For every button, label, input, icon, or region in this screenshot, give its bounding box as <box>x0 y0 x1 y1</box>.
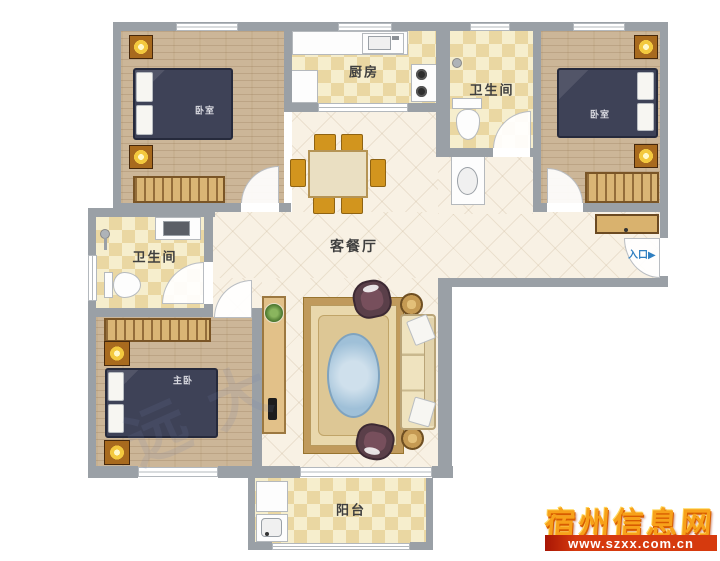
balcony-label: 阳台 <box>336 500 366 519</box>
living-dining-label: 客餐厅 <box>330 236 378 256</box>
plant <box>264 303 284 323</box>
master-bedroom-label: 主卧 <box>173 374 193 387</box>
wall <box>438 278 668 287</box>
dining-chair <box>313 197 335 214</box>
bathroom-top-label: 卫生间 <box>469 80 514 99</box>
nightstand-lamp <box>129 35 153 59</box>
window <box>88 255 97 301</box>
wall <box>438 278 452 478</box>
pillow <box>108 372 124 401</box>
drain-dot <box>265 532 269 536</box>
wall <box>88 308 213 317</box>
wardrobe-left <box>133 176 225 203</box>
side-table-bottom <box>401 427 424 450</box>
door-gap <box>547 203 583 212</box>
tv-remote <box>268 398 277 420</box>
wall <box>88 208 215 217</box>
wall <box>436 22 450 157</box>
dining-chair <box>290 159 306 187</box>
door-gap <box>493 148 530 157</box>
window <box>272 543 410 550</box>
dining-chair <box>370 159 386 187</box>
entrance-text: 入口 <box>628 250 648 261</box>
faucet <box>392 36 399 40</box>
nightstand-lamp <box>634 35 658 59</box>
site-watermark-bar: www.szxx.com.cn <box>545 535 717 551</box>
nightstand-lamp <box>104 440 130 465</box>
window <box>338 23 392 31</box>
corridor-floor <box>213 212 660 280</box>
burner <box>416 69 427 80</box>
balcony-cabinet <box>256 481 288 512</box>
pillow <box>637 72 654 100</box>
kitchen-label: 厨房 <box>349 62 379 81</box>
wall <box>660 22 668 238</box>
burner <box>416 86 427 97</box>
dining-chair <box>341 197 363 214</box>
nightstand-lamp <box>634 144 658 168</box>
wall <box>218 466 300 478</box>
wall <box>204 304 213 317</box>
bathroom-left-label: 卫生间 <box>132 247 177 266</box>
entrance-label: 入口▶ <box>628 246 656 261</box>
dining-chair <box>314 134 336 151</box>
sink-basin <box>163 221 190 236</box>
cabinet-knob <box>624 228 628 232</box>
side-table-top <box>400 293 423 316</box>
kitchen-pass-slider <box>318 103 408 112</box>
balcony-slider <box>300 467 432 477</box>
dining-chair <box>341 134 363 151</box>
nightstand-lamp <box>129 145 153 169</box>
toilet-tank <box>452 98 482 109</box>
window <box>573 23 625 31</box>
floor-plan: 卧室 卧室 主卧 厨房 卫生间 卫生间 客餐厅 <box>0 0 720 561</box>
window <box>470 23 510 31</box>
pillow <box>136 72 153 102</box>
pillow <box>108 404 124 433</box>
bedroom-right-label: 卧室 <box>590 108 610 121</box>
dining-table <box>308 150 368 198</box>
wall <box>204 208 213 262</box>
pillow <box>637 103 654 131</box>
wall <box>248 478 255 550</box>
wall <box>408 103 438 112</box>
wall <box>113 22 121 212</box>
shower-head <box>452 58 462 68</box>
wall <box>660 276 668 287</box>
door-gap <box>241 203 279 212</box>
wall <box>88 208 96 478</box>
wall <box>533 22 541 212</box>
window <box>138 467 218 477</box>
bedroom-left-label: 卧室 <box>195 104 215 117</box>
kitchen-cart <box>291 70 318 103</box>
nightstand-lamp <box>104 341 130 366</box>
wall <box>252 308 262 466</box>
wardrobe-right <box>585 172 659 203</box>
entrance-door-gap <box>660 238 668 276</box>
pillow <box>136 105 153 135</box>
wardrobe-master <box>104 318 211 342</box>
shower-arm <box>104 238 107 250</box>
toilet-tank <box>104 272 113 298</box>
entrance-arrow-icon: ▶ <box>648 250 656 261</box>
sink-basin <box>368 36 391 50</box>
vanity-basin <box>457 167 478 195</box>
window <box>176 23 238 31</box>
wall <box>426 478 433 550</box>
site-watermark-url: www.szxx.com.cn <box>568 536 694 551</box>
rug-center-oval <box>327 333 380 418</box>
door-gap <box>204 262 213 304</box>
wall <box>284 22 292 112</box>
